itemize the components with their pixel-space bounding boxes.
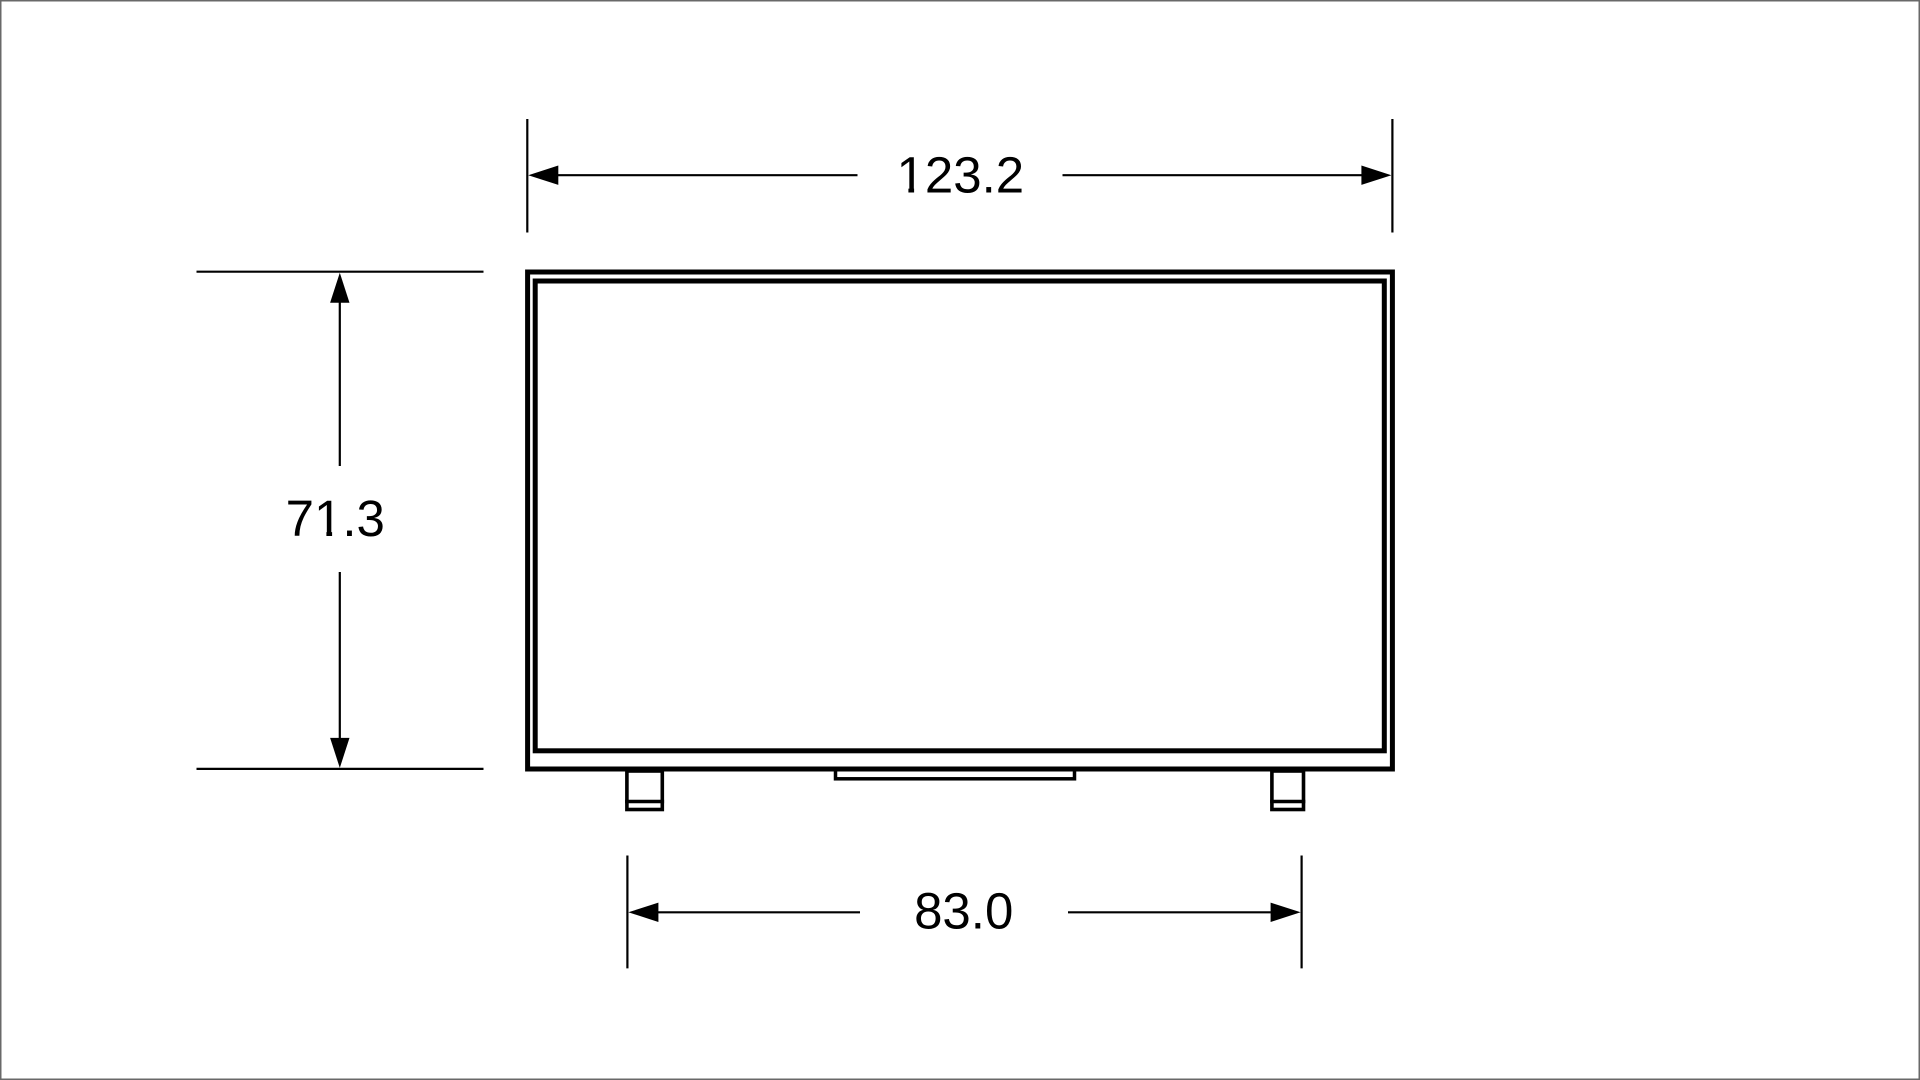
svg-text:83.0: 83.0: [914, 883, 1013, 940]
svg-text:123.2: 123.2: [896, 146, 1024, 203]
svg-text:71.3: 71.3: [286, 490, 385, 547]
